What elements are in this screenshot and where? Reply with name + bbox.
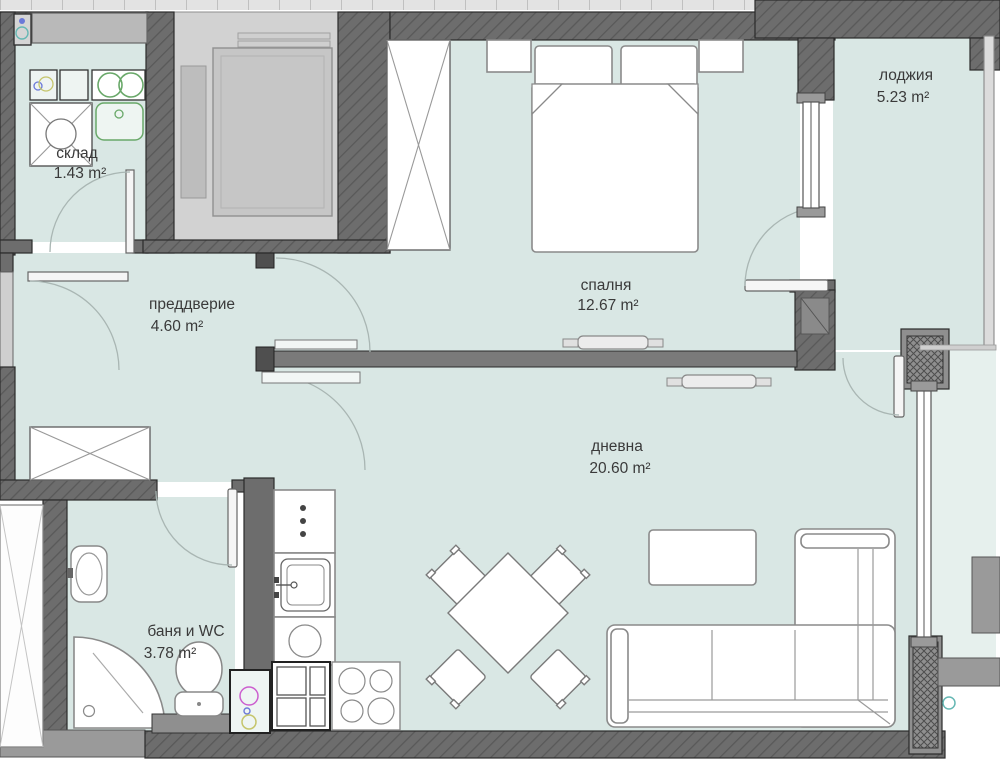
elevator-counterweight [181,66,206,198]
wall-partition-living [273,351,797,367]
wall-right-step-vertical [972,557,1000,633]
elevator-car [213,48,332,216]
label-living-area: 20.60 m² [589,460,650,477]
balcony-divider [920,345,996,350]
nightstand-right [699,40,743,72]
wall-sklad-bottom-left [0,240,32,253]
sofa-back-cushion [801,534,889,548]
label-bath-area: 3.78 m² [144,645,197,662]
wall-shaft-left [146,12,174,253]
column-window-upper [901,329,949,389]
sklad-cabinet-2 [60,70,88,100]
knob-icon [300,531,306,537]
column-detail [801,298,829,334]
kitchen-lower-cabinets [272,662,330,730]
plumbing-shaft [230,670,270,733]
adjacent-structure-strip [0,0,760,10]
bath-sink [67,546,107,602]
knob-icon [300,505,306,511]
wall-outer-left-lower [0,367,15,497]
wall-bottom [145,731,945,758]
loggia-railing [984,36,994,348]
sklad-green-sink [96,103,143,140]
label-loggia-area: 5.23 m² [877,89,930,106]
entry-door-panel [0,272,13,367]
label-loggia-name: лоджия [879,67,933,84]
wall-bath-top [0,480,157,500]
label-bath-name: баня и WC [147,623,224,640]
entry-door-leaf [28,272,128,281]
knob-icon [300,518,306,524]
wall-bedroom-right-upper [798,38,834,100]
column-window-lower [909,636,942,754]
vestibule-wardrobe [30,427,150,480]
loggia-door-leaf [745,280,828,291]
label-bedroom-area: 12.67 m² [577,297,638,314]
radiator-living [667,375,771,388]
wall-outer-left-upper [0,12,15,255]
wall-partition-endcap [256,347,274,371]
label-sklad-name: склад [56,145,97,162]
wall-top-right [755,0,1000,38]
valve-blue-icon [19,18,25,24]
elevator-door-line [238,33,330,39]
kitchen-sink [274,553,335,617]
floor-plan-page: склад 1.43 m² преддверие 4.60 m² спалня … [0,0,1000,768]
label-bedroom-name: спалня [581,277,632,294]
label-sklad-area: 1.43 m² [54,165,107,182]
bedroom-wardrobe [387,40,450,250]
bed-body [532,84,698,252]
nightstand-left [487,40,531,72]
elevator-door-line [238,41,330,47]
sklad-shelf [32,13,147,43]
kitchen-cabinet-round [274,617,335,665]
label-vestibule-area: 4.60 m² [151,318,204,335]
floor-plan-canvas: склад 1.43 m² преддверие 4.60 m² спалня … [0,0,1000,768]
wall-left-mid [0,253,13,272]
bath-door-leaf [228,489,237,567]
sklad-door-leaf [126,170,134,253]
door-jamb-corridor [256,253,274,268]
living-loggia-door-leaf [894,356,904,417]
label-living-name: дневна [591,438,643,455]
wall-bath-left [43,500,67,733]
wall-shaft-right [338,12,390,253]
stove [332,662,400,730]
wall-shaft-bottom [143,240,390,253]
label-vestibule-name: преддверие [149,296,235,313]
elevator-shaft [174,12,338,242]
bath-column [0,505,43,747]
toilet-step [152,714,233,733]
sofa-armrest [611,629,628,723]
coffee-table [649,530,756,585]
faucet-icon [67,568,73,578]
wall-right-step-horizontal [938,658,1000,686]
